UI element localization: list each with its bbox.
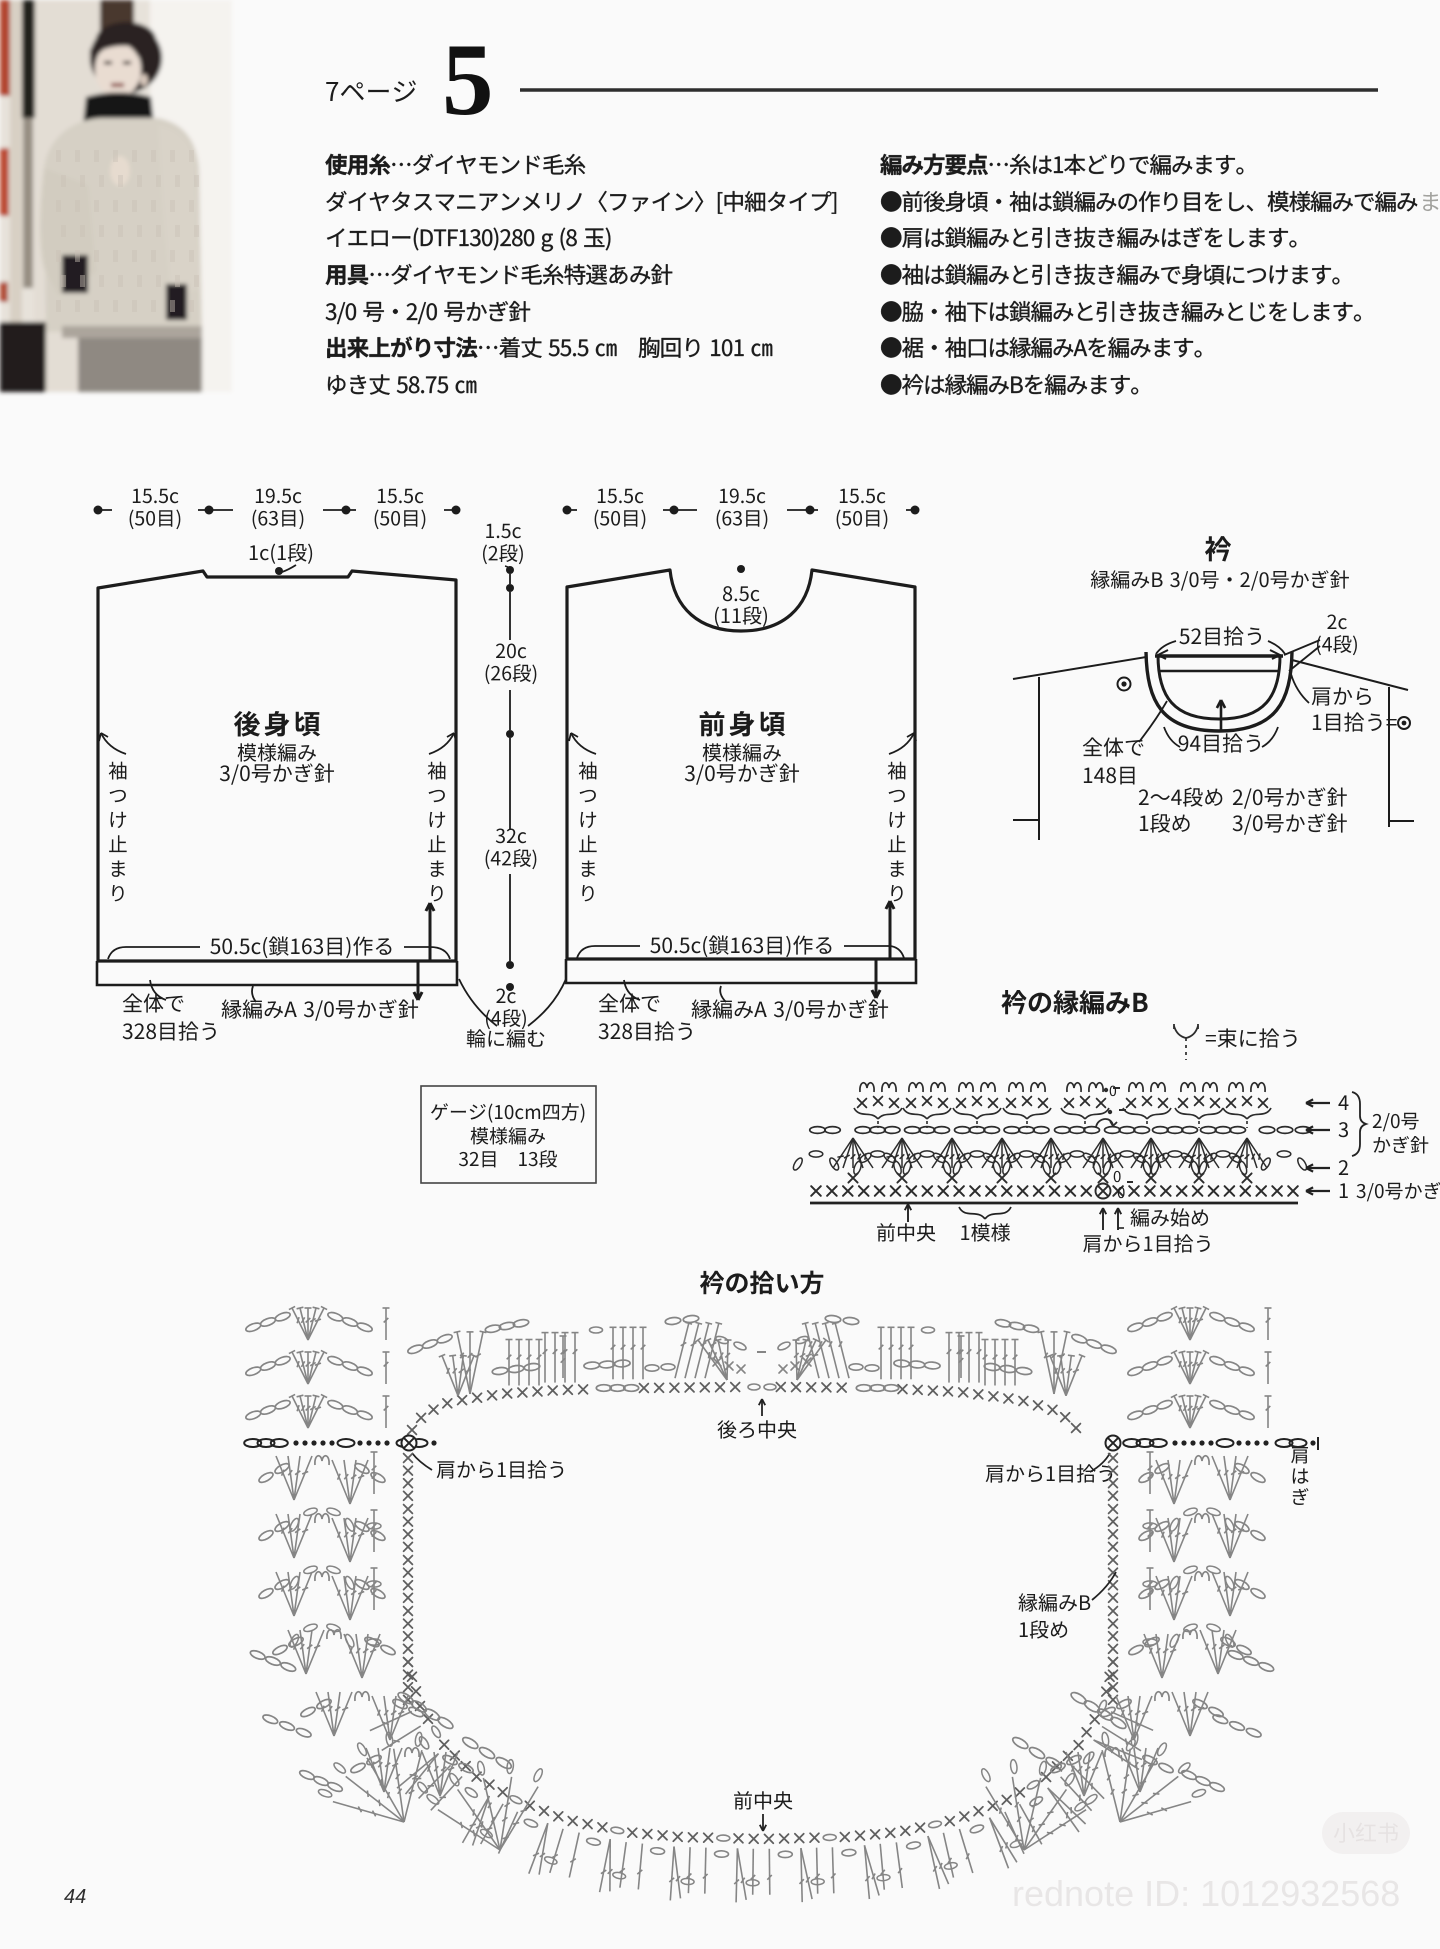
svg-text:rednote ID: 1012932568: rednote ID: 1012932568 xyxy=(1012,1873,1400,1914)
svg-text:44: 44 xyxy=(64,1886,86,1908)
svg-text:5: 5 xyxy=(442,23,494,137)
